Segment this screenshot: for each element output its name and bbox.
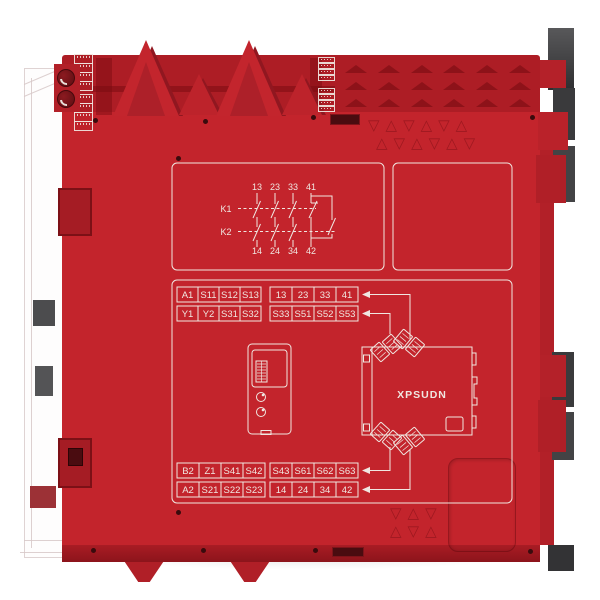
terminal-cell: B2	[182, 466, 194, 477]
route-line	[370, 314, 390, 335]
dip-switch-rungs	[257, 361, 266, 382]
terminal-cell: S21	[202, 485, 219, 496]
arrow-left-icon	[362, 486, 370, 493]
terminal-cell: S31	[221, 309, 238, 320]
top-right-terminal-table: 13 23 33 41 S33 S51 S52 S53	[270, 287, 358, 321]
front-view-drawing	[248, 344, 291, 435]
arrow-left-icon	[362, 291, 370, 298]
model-label: XPSUDN	[397, 389, 447, 401]
arrow-left-icon	[362, 310, 370, 317]
terminal-cell: S42	[246, 466, 263, 477]
bottom-left-terminal-table: B2 Z1 S41 S42 A2 S21 S22 S23	[177, 463, 265, 497]
terminal-cell: S63	[339, 466, 356, 477]
contact-terminal-label: 34	[288, 246, 298, 256]
terminal-cell: 34	[320, 485, 331, 496]
contact-terminal-label: 42	[306, 246, 316, 256]
contact-terminal-label: 24	[270, 246, 280, 256]
side-view-mark	[364, 355, 370, 362]
relay-label: K1	[220, 204, 231, 214]
side-view-port	[446, 417, 463, 431]
rotary-selector-pointer	[262, 409, 265, 412]
diagonal-connector	[370, 422, 390, 442]
side-view-mark	[364, 424, 370, 431]
terminal-cell: Z1	[204, 466, 215, 477]
printed-artwork: 13 23 33 41 K1 K2 14 24 34 42 A1 S11 S12	[0, 0, 600, 600]
terminal-cell: 23	[298, 290, 309, 301]
safety-relay-module-photo: ▽△▽△▽△ △▽△▽△▽ ▽△▽ △▽△ 13 23 33 41 K1 K2 …	[0, 0, 600, 600]
no-contact-column	[253, 193, 261, 247]
route-line	[370, 447, 390, 471]
side-view-connector-step	[472, 377, 477, 405]
terminal-cell: 24	[298, 485, 309, 496]
terminal-cell: Y1	[182, 309, 194, 320]
rotary-selector-pointer	[262, 394, 265, 397]
terminal-cell: 41	[342, 290, 353, 301]
arrow-left-icon	[362, 467, 370, 474]
rotary-selector	[257, 393, 266, 402]
diagonal-connector	[405, 427, 424, 447]
diagonal-connector	[382, 334, 402, 354]
terminal-cell: 13	[276, 290, 287, 301]
no-contact-column	[271, 193, 279, 247]
contact-terminal-label: 23	[270, 182, 280, 192]
top-left-terminal-table: A1 S11 S12 S13 Y1 Y2 S31 S32	[177, 287, 261, 321]
terminal-cell: S43	[273, 466, 290, 477]
side-view-tab	[472, 353, 476, 365]
side-view-tab	[472, 416, 476, 428]
diagonal-connector	[382, 430, 402, 450]
terminal-cell: S53	[339, 309, 356, 320]
contact-diagram: 13 23 33 41 K1 K2 14 24 34 42	[220, 182, 336, 256]
terminal-cell: A1	[182, 290, 194, 301]
contact-terminal-label: 14	[252, 246, 262, 256]
terminal-cell: S23	[246, 485, 263, 496]
contact-terminal-label: 13	[252, 182, 262, 192]
terminal-cell: S12	[221, 290, 238, 301]
relay-label: K2	[220, 227, 231, 237]
contact-terminal-label: 41	[306, 182, 316, 192]
terminal-cell: S52	[317, 309, 334, 320]
terminal-cell: S61	[295, 466, 312, 477]
terminal-cell: S32	[242, 309, 259, 320]
terminal-cell: Y2	[203, 309, 215, 320]
terminal-cell: S62	[317, 466, 334, 477]
terminal-cell: S11	[200, 290, 216, 301]
terminal-cell: 33	[320, 290, 331, 301]
terminal-cell: A2	[182, 485, 194, 496]
terminal-cell: 42	[342, 485, 353, 496]
bottom-right-terminal-table: S43 S61 S62 S63 14 24 34 42	[270, 463, 358, 497]
terminal-cell: S33	[273, 309, 290, 320]
contact-terminal-label: 33	[288, 182, 298, 192]
terminal-cell: 14	[276, 485, 287, 496]
front-view-outline	[248, 344, 291, 434]
diagonal-connector	[370, 342, 390, 362]
spare-panel	[393, 163, 512, 270]
front-view-window	[252, 350, 287, 387]
side-view-drawing: XPSUDN	[362, 329, 477, 455]
terminal-cell: S41	[224, 466, 241, 477]
rotary-selector	[257, 408, 266, 417]
no-contact-column	[289, 193, 297, 247]
terminal-cell: S51	[295, 309, 312, 320]
nc-contact-column	[309, 193, 318, 247]
terminal-cell: S22	[224, 485, 241, 496]
terminal-cell: S13	[242, 290, 259, 301]
